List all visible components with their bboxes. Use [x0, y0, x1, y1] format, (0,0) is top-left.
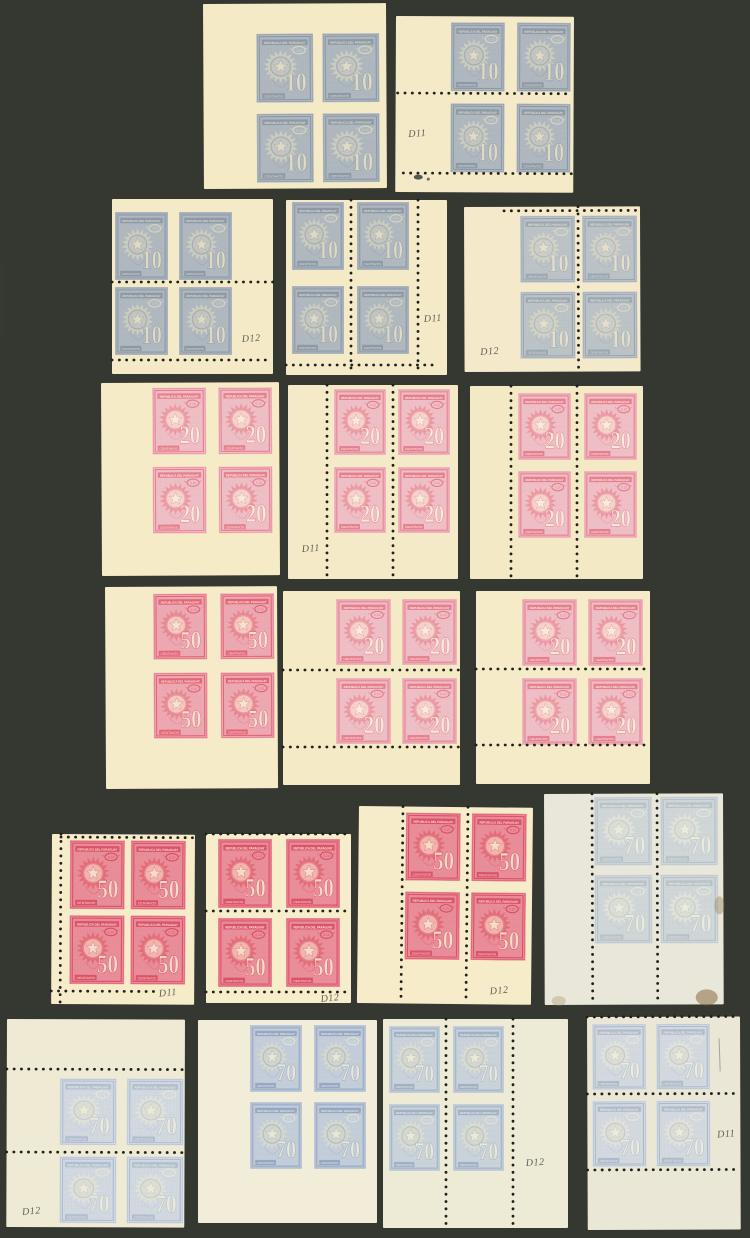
svg-text:D12: D12	[21, 1205, 42, 1218]
svg-text:D12: D12	[488, 985, 509, 998]
svg-text:D12: D12	[479, 346, 499, 358]
svg-text:D11: D11	[407, 128, 427, 140]
svg-text:D11: D11	[422, 313, 442, 325]
svg-text:D12: D12	[240, 333, 260, 345]
svg-text:D11: D11	[157, 987, 177, 1000]
svg-text:D12: D12	[319, 992, 340, 1005]
svg-text:D12: D12	[524, 1157, 544, 1169]
svg-text:D11: D11	[300, 543, 320, 555]
svg-text:D11: D11	[716, 1128, 736, 1140]
